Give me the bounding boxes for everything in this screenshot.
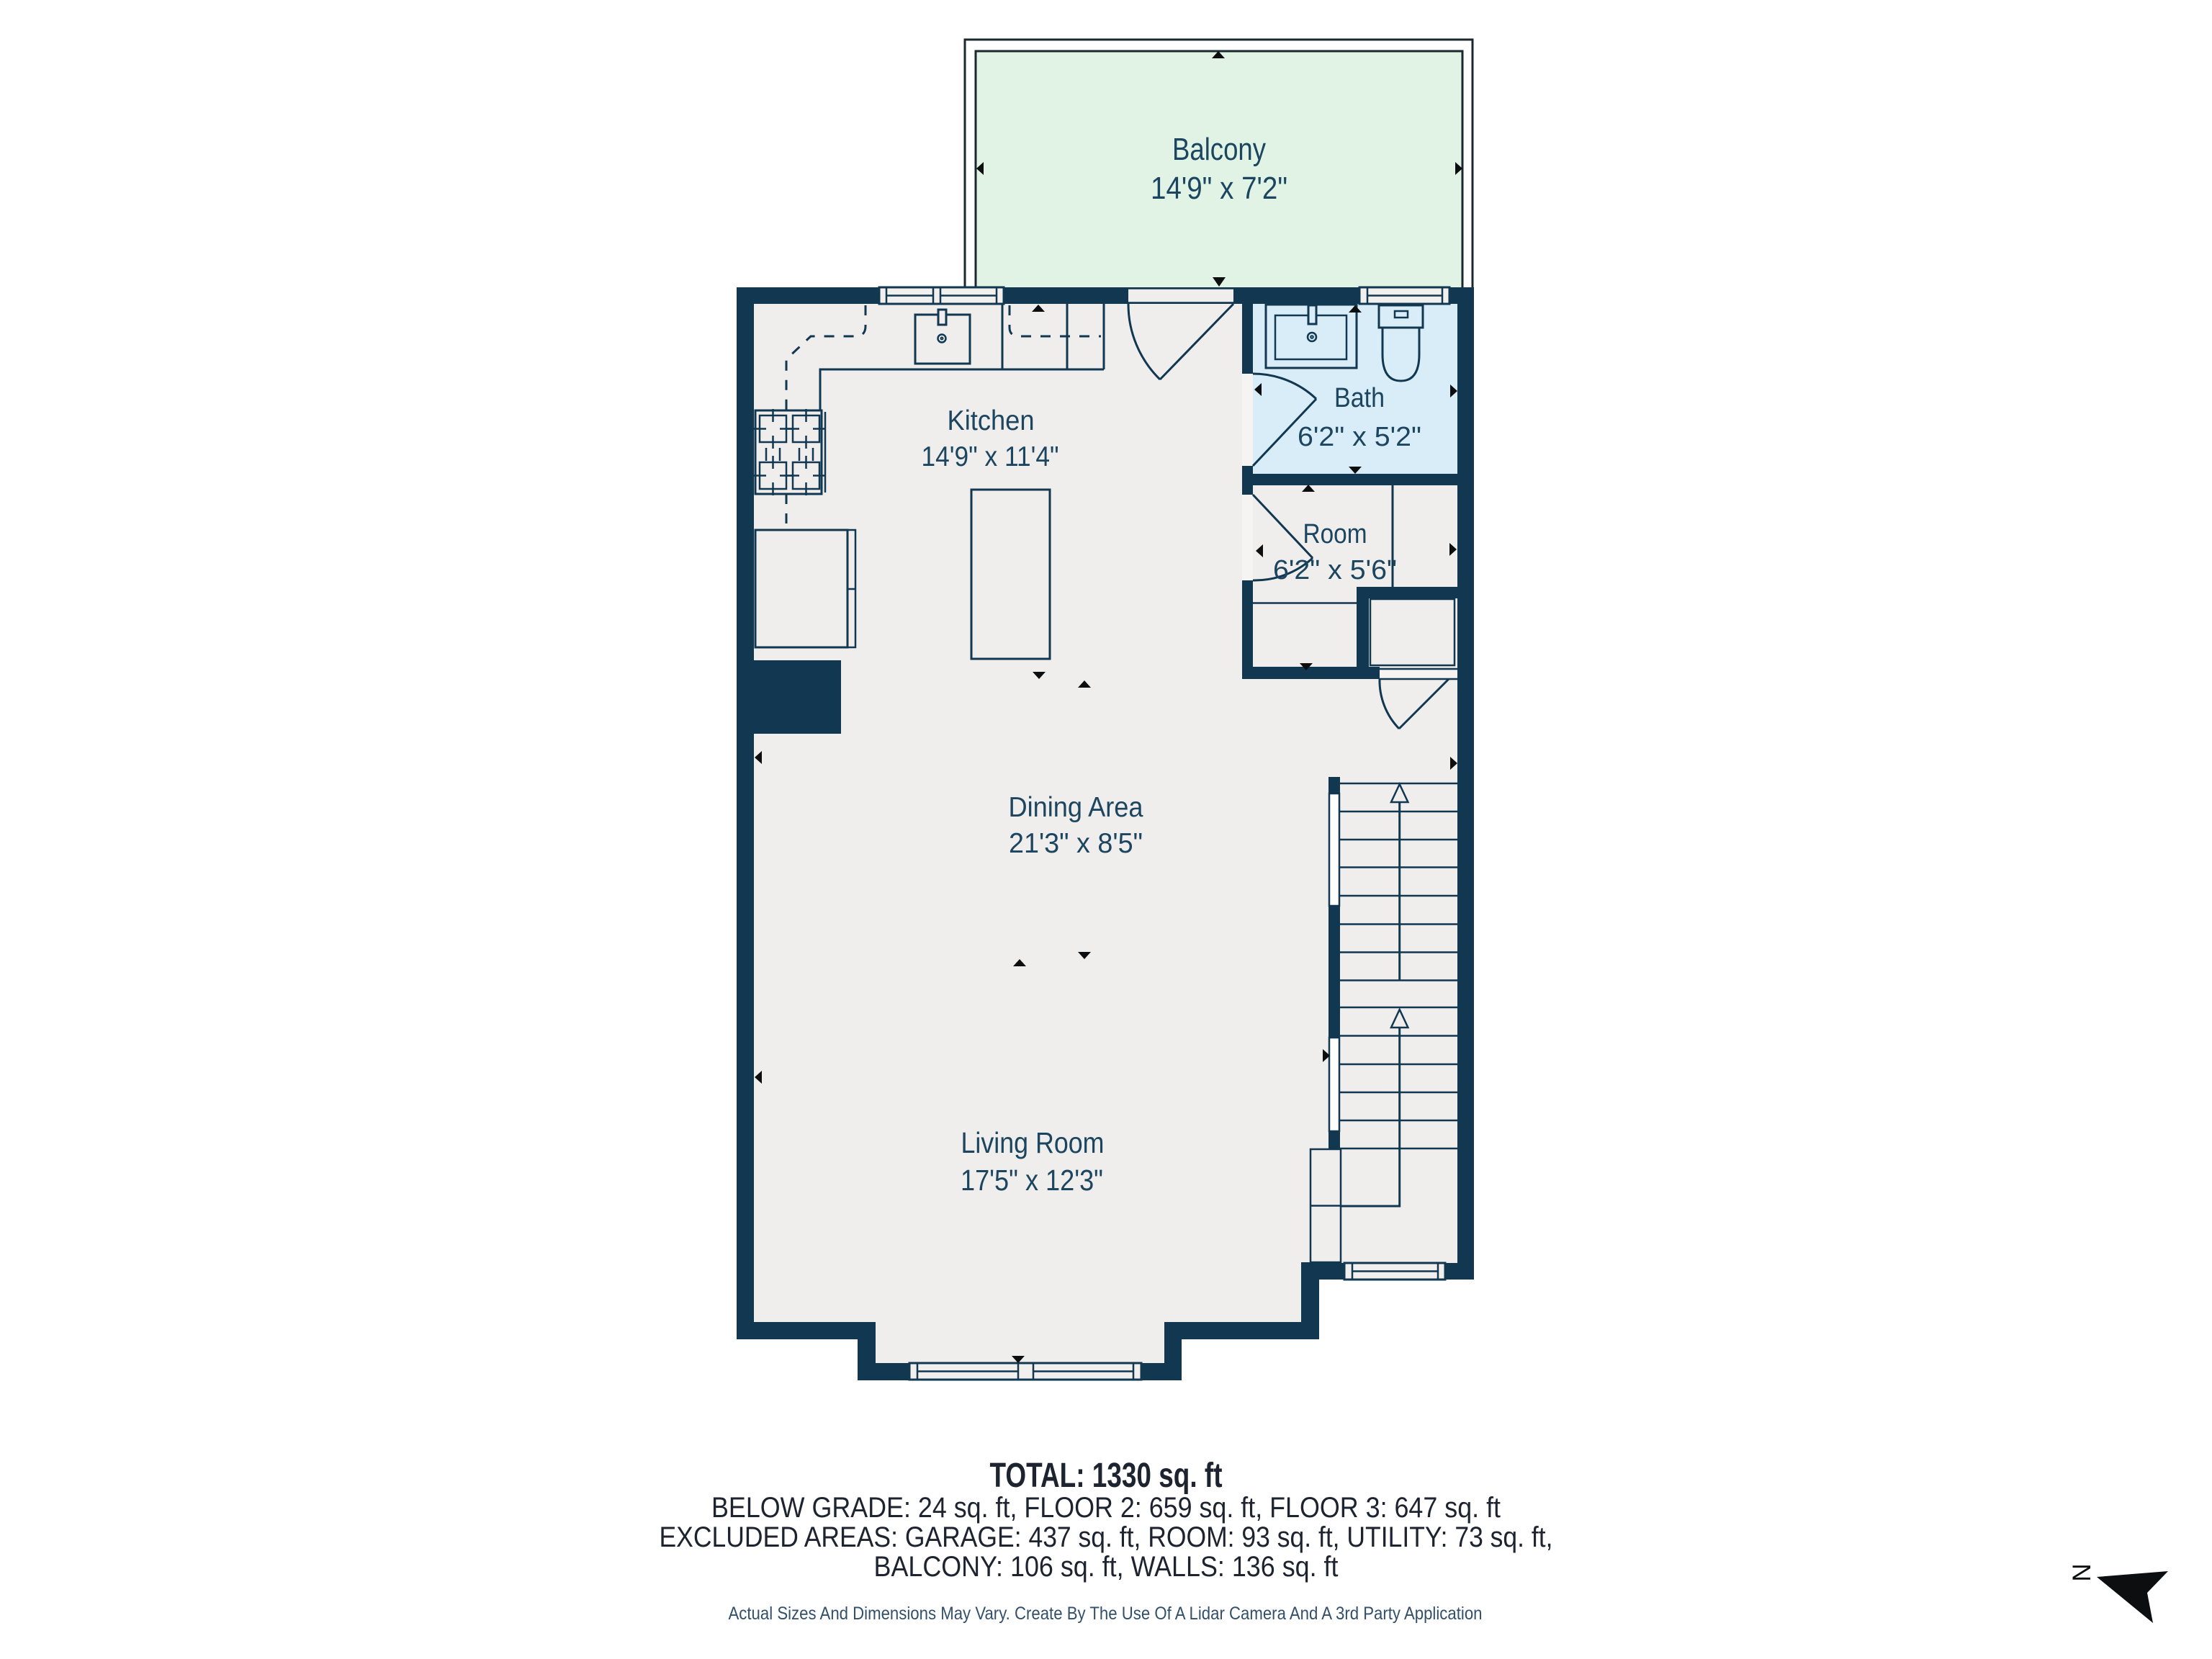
svg-text:6'2" x 5'6": 6'2" x 5'6" xyxy=(1273,555,1397,585)
svg-text:17'5" x 12'3": 17'5" x 12'3" xyxy=(961,1164,1103,1197)
svg-text:EXCLUDED AREAS: GARAGE: 437 sq: EXCLUDED AREAS: GARAGE: 437 sq. ft, ROOM… xyxy=(660,1521,1553,1553)
svg-text:Living Room: Living Room xyxy=(961,1126,1105,1159)
svg-text:Balcony: Balcony xyxy=(1172,132,1266,167)
svg-text:14'9" x 7'2": 14'9" x 7'2" xyxy=(1151,171,1287,206)
svg-text:Kitchen: Kitchen xyxy=(948,405,1035,436)
svg-text:6'2" x 5'2": 6'2" x 5'2" xyxy=(1298,422,1421,452)
svg-text:BALCONY: 106 sq. ft, WALLS: 13: BALCONY: 106 sq. ft, WALLS: 136 sq. ft xyxy=(874,1551,1339,1583)
svg-text:N: N xyxy=(2068,1563,2096,1581)
svg-text:BELOW GRADE: 24 sq. ft, FLOOR: BELOW GRADE: 24 sq. ft, FLOOR 2: 659 sq.… xyxy=(711,1492,1501,1524)
svg-text:Bath: Bath xyxy=(1334,383,1385,413)
svg-text:14'9" x 11'4": 14'9" x 11'4" xyxy=(922,441,1059,472)
svg-text:Actual Sizes And Dimensions Ma: Actual Sizes And Dimensions May Vary. Cr… xyxy=(729,1604,1483,1624)
svg-text:TOTAL: 1330 sq. ft: TOTAL: 1330 sq. ft xyxy=(990,1457,1223,1495)
svg-text:21'3" x 8'5": 21'3" x 8'5" xyxy=(1009,828,1143,859)
svg-text:Room: Room xyxy=(1303,519,1367,549)
svg-text:Dining Area: Dining Area xyxy=(1009,792,1143,823)
